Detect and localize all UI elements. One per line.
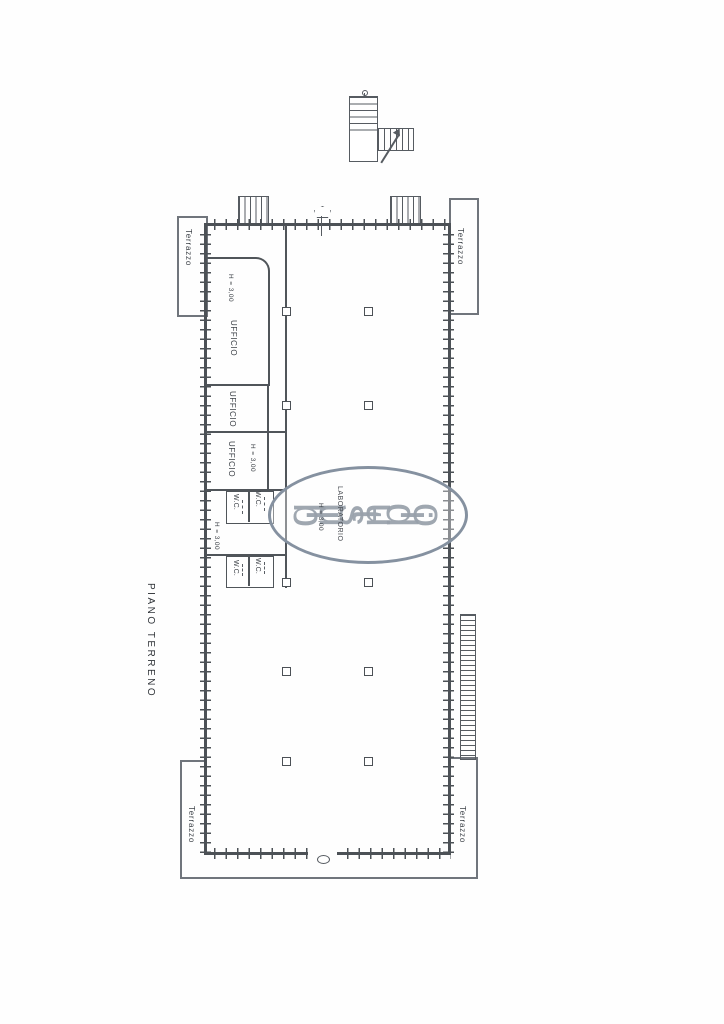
room-ufficio-top-outline — [206, 257, 270, 385]
room-label-laboratorio: LABORATORIO — [336, 486, 343, 541]
height-label-ufficio-top: H = 3,00 — [227, 274, 234, 302]
wc-upper-divider — [248, 491, 250, 522]
column-marker — [364, 578, 373, 587]
terrace-bottom-right-edge — [476, 757, 478, 879]
wc-lower-divider — [248, 556, 250, 586]
terrace-label-top-left: Terrazzo — [184, 229, 193, 266]
column-marker — [364, 307, 373, 316]
watermark-letter: o — [406, 503, 450, 527]
wc-door-dash — [242, 564, 243, 576]
partition-ufficio-1-2 — [206, 384, 270, 386]
wc-door-dash — [242, 500, 243, 514]
room-label-ufficio-mid: UFFICIO — [228, 391, 237, 427]
room-label-wc: W.C. — [254, 558, 261, 574]
partition-ufficio-2-3 — [206, 431, 287, 433]
page-title: PIANO TERRENO — [145, 583, 156, 698]
north-arrow-stem — [321, 216, 322, 236]
room-label-wc: W.C. — [232, 560, 239, 576]
wall-bottom-right-segment — [337, 852, 451, 855]
terrace-label-bottom-left: Terrazzo — [187, 806, 196, 843]
column-marker — [364, 667, 373, 676]
room-label-wc: W.C. — [232, 494, 239, 510]
exterior-ladder-right — [460, 614, 476, 760]
terrace-bottom-edge — [180, 877, 478, 879]
stair-flight-vertical — [349, 96, 378, 162]
height-label-ufficio-low: H = 3,00 — [249, 444, 256, 472]
column-marker — [282, 757, 291, 766]
column-marker — [282, 307, 291, 316]
room-label-wc: W.C. — [254, 491, 261, 507]
watermark-ellipse: blustudio — [268, 466, 468, 564]
column-marker — [282, 578, 291, 587]
column-marker — [364, 401, 373, 410]
entrance-door-marker — [317, 855, 330, 864]
room-label-ufficio-top: UFFICIO — [229, 320, 238, 356]
terrace-label-top-right: Terrazzo — [456, 228, 465, 265]
wall-bottom-left-segment — [204, 852, 308, 855]
column-marker — [282, 667, 291, 676]
stair-treads — [350, 97, 377, 133]
terrace-bottom-left-edge — [180, 760, 182, 879]
wc-door-dash — [264, 497, 265, 511]
partition-office-right — [267, 384, 269, 490]
room-label-ufficio-low: UFFICIO — [227, 441, 236, 477]
column-marker — [364, 757, 373, 766]
north-arrow-icon — [314, 206, 331, 218]
scanned-floor-plan-page: PIANO TERRENO Terrazzo Terrazzo Terrazzo… — [0, 0, 724, 1024]
wall-top — [204, 223, 451, 226]
wc-door-dash — [264, 562, 265, 574]
height-label-wc-hall: H = 3,00 — [213, 522, 220, 550]
column-marker — [282, 401, 291, 410]
height-label-laboratorio: H = 3,00 — [317, 503, 324, 531]
terrace-label-bottom-right: Terrazzo — [458, 806, 467, 843]
